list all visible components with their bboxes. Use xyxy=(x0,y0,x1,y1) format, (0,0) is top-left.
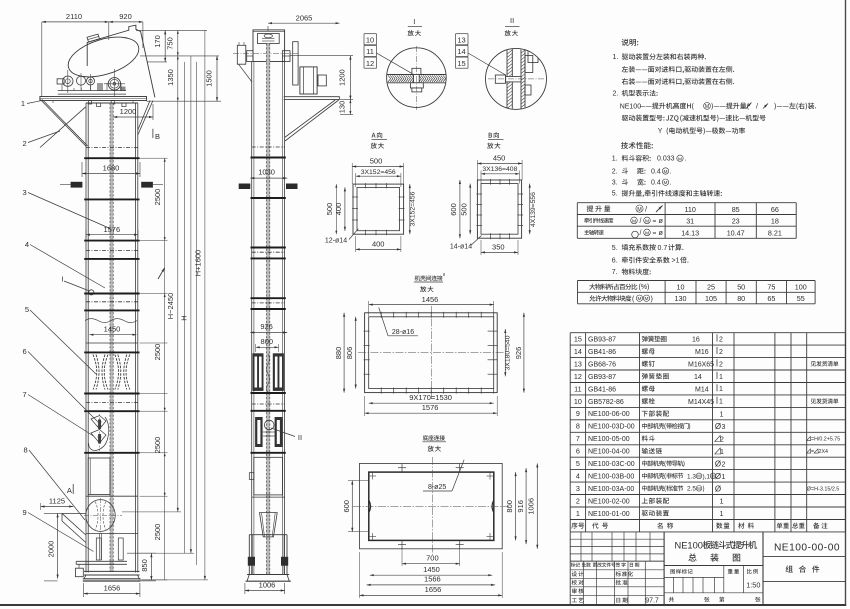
svg-text:5: 5 xyxy=(576,459,580,468)
svg-text:10: 10 xyxy=(677,283,685,292)
svg-text:NE100-03D-00: NE100-03D-00 xyxy=(588,424,635,431)
svg-text:18: 18 xyxy=(771,217,779,226)
svg-text:9: 9 xyxy=(576,409,580,418)
svg-text:/: / xyxy=(640,218,642,225)
svg-text:1450: 1450 xyxy=(104,325,121,334)
svg-text:),1: ),1 xyxy=(703,473,711,480)
svg-text:0.4: 0.4 xyxy=(651,168,661,175)
svg-text:28-ø16: 28-ø16 xyxy=(392,329,414,336)
svg-text:2: 2 xyxy=(23,139,27,148)
svg-text:110: 110 xyxy=(684,205,695,214)
svg-text:=: = xyxy=(811,449,814,455)
svg-text:1: 1 xyxy=(720,497,724,506)
svg-text:15: 15 xyxy=(457,59,465,68)
svg-text:ø: ø xyxy=(659,216,664,225)
svg-text:1: 1 xyxy=(576,509,580,518)
svg-text:12-ø14: 12-ø14 xyxy=(325,238,347,245)
svg-text:0.7: 0.7 xyxy=(658,245,668,252)
svg-text:/: / xyxy=(640,230,642,237)
svg-text:600: 600 xyxy=(449,203,458,216)
svg-text:M16: M16 xyxy=(695,349,709,356)
svg-text:M: M xyxy=(645,218,649,224)
svg-text:85: 85 xyxy=(732,205,740,214)
svg-text:3.: 3. xyxy=(612,180,618,187)
svg-text:M: M xyxy=(637,207,642,213)
svg-text:1656: 1656 xyxy=(425,585,442,594)
svg-text:3: 3 xyxy=(23,188,27,197)
svg-text:700: 700 xyxy=(426,554,439,563)
svg-text:5.: 5. xyxy=(612,245,618,252)
svg-text:Ø=H-3.15/2.5: Ø=H-3.15/2.5 xyxy=(807,487,840,493)
svg-text:=: = xyxy=(653,230,657,237)
svg-text:806: 806 xyxy=(345,347,354,360)
svg-text:2000: 2000 xyxy=(47,541,56,558)
svg-text:100: 100 xyxy=(795,283,807,292)
svg-text:2065: 2065 xyxy=(296,14,313,23)
svg-text:400: 400 xyxy=(372,240,385,249)
svg-text:4: 4 xyxy=(25,240,29,249)
svg-text:II: II xyxy=(443,272,446,277)
svg-text:6.: 6. xyxy=(612,258,618,265)
svg-text:800: 800 xyxy=(505,500,514,513)
svg-text:105: 105 xyxy=(705,294,717,303)
svg-text:7: 7 xyxy=(23,390,27,399)
svg-text:M: M xyxy=(638,296,642,302)
svg-text:800: 800 xyxy=(261,337,274,346)
svg-text:2X4: 2X4 xyxy=(819,449,828,455)
svg-text:15: 15 xyxy=(574,335,582,344)
svg-text:2: 2 xyxy=(719,361,723,368)
svg-text:50: 50 xyxy=(737,283,745,292)
svg-text:NE100-04-00: NE100-04-00 xyxy=(588,449,630,456)
svg-text:1: 1 xyxy=(719,374,723,381)
svg-text:1350: 1350 xyxy=(166,69,175,86)
svg-text:170: 170 xyxy=(153,35,162,48)
svg-text:2.: 2. xyxy=(613,91,619,98)
svg-text:M: M xyxy=(664,180,668,186)
svg-text:4: 4 xyxy=(576,472,580,481)
svg-text:M: M xyxy=(645,230,649,236)
svg-text:1: 1 xyxy=(720,509,724,518)
svg-text:Ø: Ø xyxy=(715,472,721,481)
svg-text:3: 3 xyxy=(722,424,726,431)
svg-text:16: 16 xyxy=(692,337,700,344)
svg-text:1.3: 1.3 xyxy=(687,473,696,480)
svg-text:M: M xyxy=(697,474,701,479)
svg-text:II: II xyxy=(510,16,514,25)
svg-text:M: M xyxy=(705,104,709,110)
svg-text:8: 8 xyxy=(24,446,28,455)
svg-text:926: 926 xyxy=(514,347,523,360)
svg-text:1456: 1456 xyxy=(422,295,439,304)
svg-text:12: 12 xyxy=(574,372,582,381)
svg-text:850: 850 xyxy=(140,559,149,572)
svg-text:14.13: 14.13 xyxy=(681,228,699,237)
svg-text:>1: >1 xyxy=(672,258,680,265)
svg-text:2: 2 xyxy=(719,349,723,356)
svg-text:55: 55 xyxy=(797,294,805,303)
svg-text:I: I xyxy=(62,275,64,284)
svg-text:II: II xyxy=(298,433,302,442)
svg-text:B: B xyxy=(155,132,160,141)
svg-text:NE100-03C-00: NE100-03C-00 xyxy=(588,461,635,468)
svg-text:1500: 1500 xyxy=(204,70,213,87)
svg-text:926: 926 xyxy=(260,322,273,331)
svg-text:23: 23 xyxy=(732,217,740,226)
svg-text:3X152=456: 3X152=456 xyxy=(361,169,396,176)
svg-text:10.47: 10.47 xyxy=(727,228,745,237)
svg-text:/: / xyxy=(756,104,758,111)
svg-text:3X152=456: 3X152=456 xyxy=(410,191,417,226)
svg-text:2: 2 xyxy=(576,496,580,505)
svg-text:130: 130 xyxy=(338,101,347,114)
svg-text:1680: 1680 xyxy=(103,164,120,173)
svg-text:1:50: 1:50 xyxy=(746,581,760,590)
svg-text:M: M xyxy=(664,169,668,175)
svg-text:8-ø25: 8-ø25 xyxy=(428,484,446,491)
svg-text:1006: 1006 xyxy=(527,498,536,515)
svg-text:NE100: NE100 xyxy=(620,103,642,110)
svg-text:NE100-03A-00: NE100-03A-00 xyxy=(588,486,634,493)
svg-text:1.: 1. xyxy=(613,54,619,61)
svg-text:1656: 1656 xyxy=(104,584,121,593)
svg-text:66: 66 xyxy=(771,205,779,214)
svg-text:1200: 1200 xyxy=(338,69,347,86)
svg-text:2500: 2500 xyxy=(153,344,162,361)
svg-text:10: 10 xyxy=(574,397,582,406)
svg-text:1: 1 xyxy=(722,474,726,481)
svg-text:1125: 1125 xyxy=(49,497,65,506)
svg-text:3: 3 xyxy=(576,484,580,493)
svg-text:600: 600 xyxy=(342,500,351,513)
svg-text:NE100-05-00: NE100-05-00 xyxy=(588,436,630,443)
svg-text:0.033: 0.033 xyxy=(657,156,675,163)
svg-text:1: 1 xyxy=(719,399,723,406)
svg-text:M: M xyxy=(697,486,701,491)
svg-text:GB68-76: GB68-76 xyxy=(588,361,616,368)
svg-text:2500: 2500 xyxy=(153,189,162,206)
svg-text:.: . xyxy=(670,168,672,175)
svg-text:500: 500 xyxy=(370,156,383,165)
svg-text:H: H xyxy=(179,315,188,320)
svg-text:ø: ø xyxy=(659,228,664,237)
svg-text:M14: M14 xyxy=(695,386,709,393)
svg-text:130: 130 xyxy=(675,294,687,303)
svg-text:750: 750 xyxy=(166,37,175,50)
svg-text:1576: 1576 xyxy=(422,403,439,412)
svg-text:): ) xyxy=(651,296,653,303)
svg-text:(%): (%) xyxy=(639,284,650,291)
svg-text:14-ø14: 14-ø14 xyxy=(450,243,472,250)
svg-text:5: 5 xyxy=(25,305,29,314)
svg-text:1.: 1. xyxy=(612,156,618,163)
svg-text:450: 450 xyxy=(493,154,506,163)
svg-text:500: 500 xyxy=(460,203,469,216)
svg-text:Y: Y xyxy=(658,128,663,135)
svg-text:2: 2 xyxy=(720,437,724,444)
svg-text:916: 916 xyxy=(516,500,525,513)
svg-text:.: . xyxy=(685,156,687,163)
svg-text:1566: 1566 xyxy=(424,575,441,584)
svg-text:3X136=408: 3X136=408 xyxy=(482,166,517,173)
svg-text:2500: 2500 xyxy=(153,524,162,541)
svg-text:H−2450: H−2450 xyxy=(166,293,175,319)
svg-text:9: 9 xyxy=(23,508,27,517)
svg-text:4X139=556: 4X139=556 xyxy=(530,192,537,227)
svg-text:M: M xyxy=(678,156,682,162)
svg-text:6: 6 xyxy=(23,347,27,356)
svg-text:NE100-06-00: NE100-06-00 xyxy=(588,411,630,418)
svg-text:11: 11 xyxy=(574,384,581,393)
svg-text:880: 880 xyxy=(334,347,343,360)
svg-text:13: 13 xyxy=(457,36,465,45)
svg-text:5.: 5. xyxy=(612,191,618,198)
svg-text:31: 31 xyxy=(686,217,694,226)
svg-text:M: M xyxy=(632,218,636,224)
svg-text:500: 500 xyxy=(325,203,334,216)
svg-text:1: 1 xyxy=(720,449,724,456)
svg-text:97.7: 97.7 xyxy=(645,598,659,605)
svg-text:H+1600: H+1600 xyxy=(193,250,202,276)
svg-text:NE100-00-00: NE100-00-00 xyxy=(774,542,840,553)
svg-text:GB5782-86: GB5782-86 xyxy=(588,399,624,406)
svg-text:A: A xyxy=(67,486,72,495)
svg-text:2500: 2500 xyxy=(153,437,162,454)
svg-text:11: 11 xyxy=(366,47,374,56)
svg-text:2: 2 xyxy=(719,336,723,343)
svg-text:8: 8 xyxy=(576,422,580,431)
svg-text:1: 1 xyxy=(719,386,723,393)
svg-text:M: M xyxy=(645,296,649,302)
svg-text:1: 1 xyxy=(21,99,25,108)
svg-text:14: 14 xyxy=(694,374,702,381)
svg-text:350: 350 xyxy=(492,243,505,252)
svg-text:13: 13 xyxy=(574,359,582,368)
svg-text:12: 12 xyxy=(366,59,374,68)
svg-text:NE100-02-00: NE100-02-00 xyxy=(588,498,630,505)
svg-text:400: 400 xyxy=(334,203,343,216)
svg-text:14: 14 xyxy=(574,347,582,356)
svg-text:M16X65: M16X65 xyxy=(688,361,714,368)
svg-text:65: 65 xyxy=(767,294,775,303)
svg-text:9X170=1530: 9X170=1530 xyxy=(409,393,452,402)
svg-text:M14X45: M14X45 xyxy=(688,399,714,406)
svg-text:GB93-87: GB93-87 xyxy=(588,374,616,381)
svg-text:GB41-86: GB41-86 xyxy=(588,349,616,356)
svg-text:NE100: NE100 xyxy=(675,540,703,550)
svg-text:=H/0.2+5.75: =H/0.2+5.75 xyxy=(811,437,840,443)
svg-text:10: 10 xyxy=(366,36,374,45)
svg-text:NE100-03B-00: NE100-03B-00 xyxy=(588,474,634,481)
svg-text:75: 75 xyxy=(767,283,775,292)
svg-text:0.4: 0.4 xyxy=(651,180,661,187)
svg-text:7.: 7. xyxy=(612,269,618,276)
svg-text:Ø: Ø xyxy=(715,422,721,431)
svg-text:=: = xyxy=(653,218,657,225)
svg-text:6: 6 xyxy=(576,447,580,456)
svg-text:2.: 2. xyxy=(612,168,618,175)
svg-text:7: 7 xyxy=(576,434,580,443)
svg-text:2: 2 xyxy=(722,461,726,468)
svg-text:GB93-87: GB93-87 xyxy=(588,337,616,344)
svg-text:2.5: 2.5 xyxy=(687,486,696,493)
svg-text:1006: 1006 xyxy=(259,581,276,590)
svg-text:Ø: Ø xyxy=(715,484,721,493)
svg-text:2110: 2110 xyxy=(66,12,82,21)
svg-text:1200: 1200 xyxy=(120,107,137,116)
svg-text:8.21: 8.21 xyxy=(768,228,782,237)
svg-text:Ø: Ø xyxy=(715,459,721,468)
svg-text:1030: 1030 xyxy=(258,168,275,177)
svg-text:80: 80 xyxy=(737,294,745,303)
svg-text:.: . xyxy=(670,180,672,187)
svg-text:25: 25 xyxy=(707,283,715,292)
svg-text:14: 14 xyxy=(457,47,465,56)
svg-text:1: 1 xyxy=(720,409,724,418)
svg-text:NE100-01-00: NE100-01-00 xyxy=(588,511,630,518)
svg-text:GB41-86: GB41-86 xyxy=(588,386,616,393)
svg-text:I: I xyxy=(413,17,415,26)
svg-text:1450: 1450 xyxy=(423,565,440,574)
svg-text:920: 920 xyxy=(119,12,132,21)
